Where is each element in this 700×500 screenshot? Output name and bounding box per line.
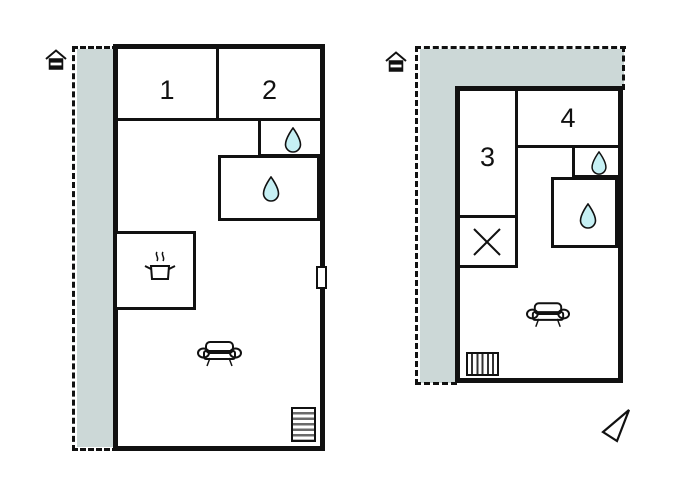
floor-plan-left: 1 2 [0, 0, 350, 500]
water-drop-icon [590, 151, 608, 175]
wall-segment [460, 215, 518, 218]
plot-boundary-dashed [72, 46, 118, 49]
sofa-icon [526, 301, 570, 329]
cooking-pot-icon [141, 250, 179, 286]
crossed-closet-icon [471, 226, 503, 258]
plot-boundary-dashed [72, 448, 118, 451]
room-label: 1 [118, 76, 216, 104]
wall-segment [518, 145, 618, 148]
stairs-icon [291, 407, 316, 442]
entrance-icon [385, 51, 407, 74]
terrace-area [420, 49, 455, 383]
wall-segment [460, 265, 518, 268]
room-label: 4 [518, 104, 618, 132]
wall-segment [258, 121, 261, 157]
plot-boundary-dashed [415, 382, 457, 385]
plot-boundary-dashed [622, 46, 625, 90]
water-drop-icon [284, 127, 302, 153]
floor-plan-right: 3 4 [350, 0, 700, 500]
plot-boundary-dashed [415, 46, 418, 385]
sofa-icon [197, 340, 242, 368]
room-label: 3 [460, 143, 515, 171]
plot-boundary-dashed [415, 46, 626, 49]
door-marker [316, 266, 327, 289]
terrace-area [77, 49, 113, 447]
north-arrow-icon [599, 406, 632, 444]
entrance-icon [45, 49, 67, 72]
wall-segment [572, 148, 575, 178]
room-label: 2 [219, 76, 320, 104]
radiator-icon [466, 352, 499, 376]
floorplan-canvas: 1 2 [0, 0, 700, 500]
plot-boundary-dashed [72, 46, 75, 451]
water-drop-icon [579, 203, 597, 229]
water-drop-icon [262, 176, 280, 202]
wall-segment [118, 118, 320, 121]
